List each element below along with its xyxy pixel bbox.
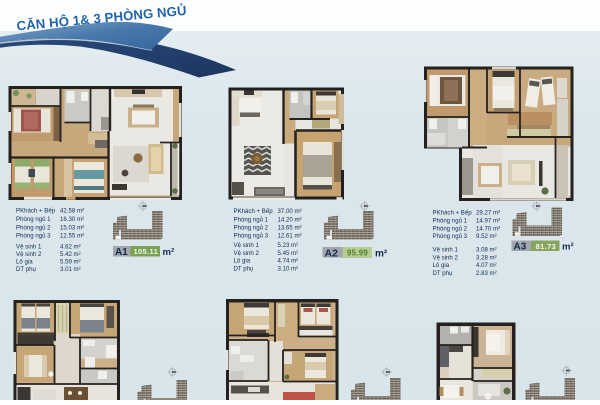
svg-text:14.20 m²: 14.20 m²: [278, 217, 302, 224]
svg-text:5.45 m²: 5.45 m²: [278, 250, 299, 257]
svg-text:PKhách + Bếp: PKhách + Bếp: [234, 208, 274, 215]
svg-text:14.70 m²: 14.70 m²: [476, 226, 500, 233]
svg-text:29.27 m²: 29.27 m²: [476, 210, 500, 217]
svg-text:42.58 m²: 42.58 m²: [60, 208, 84, 215]
svg-text:105.11: 105.11: [134, 247, 159, 256]
svg-text:15.03 m²: 15.03 m²: [60, 225, 84, 232]
svg-text:A2: A2: [325, 247, 339, 259]
svg-text:Phòng ngủ 3: Phòng ngủ 3: [16, 233, 51, 240]
svg-text:3.08 m²: 3.08 m²: [476, 247, 497, 254]
svg-text:A3: A3: [514, 242, 527, 253]
svg-text:Phòng ngủ 3: Phòng ngủ 3: [234, 233, 269, 240]
svg-text:12.55 m²: 12.55 m²: [60, 233, 84, 240]
svg-text:2.83 m²: 2.83 m²: [476, 270, 497, 277]
svg-text:DT phụ: DT phụ: [433, 270, 453, 277]
svg-text:m²: m²: [562, 242, 574, 253]
svg-text:A1: A1: [115, 247, 128, 258]
svg-text:PKhách + Bếp: PKhách + Bếp: [16, 208, 56, 215]
svg-text:3.01 m²: 3.01 m²: [60, 266, 81, 273]
svg-text:Vệ sinh 1: Vệ sinh 1: [234, 242, 260, 249]
svg-text:5.23 m²: 5.23 m²: [278, 242, 299, 249]
svg-text:Vệ sinh 2: Vệ sinh 2: [16, 251, 42, 258]
svg-text:m²: m²: [163, 247, 175, 258]
svg-text:Vệ sinh 1: Vệ sinh 1: [433, 247, 459, 254]
svg-text:Phòng ngủ 1: Phòng ngủ 1: [433, 218, 468, 225]
svg-text:m²: m²: [375, 248, 388, 259]
svg-text:Vệ sinh 2: Vệ sinh 2: [234, 250, 260, 257]
svg-text:4.07 m²: 4.07 m²: [476, 262, 497, 269]
svg-text:13.65 m²: 13.65 m²: [278, 225, 302, 232]
svg-text:Lô gia: Lô gia: [433, 262, 450, 269]
svg-text:95.99: 95.99: [347, 248, 368, 257]
svg-text:Vệ sinh 2: Vệ sinh 2: [433, 255, 459, 262]
svg-text:9.52 m²: 9.52 m²: [476, 233, 497, 240]
svg-text:5.59 m²: 5.59 m²: [60, 259, 81, 266]
svg-text:Phòng ngủ 2: Phòng ngủ 2: [234, 225, 269, 232]
svg-text:DT phụ: DT phụ: [16, 266, 36, 273]
svg-text:16.30 m²: 16.30 m²: [60, 216, 84, 223]
svg-text:3.28 m²: 3.28 m²: [476, 255, 497, 262]
svg-text:Phòng ngủ 2: Phòng ngủ 2: [433, 226, 468, 233]
svg-text:4.62 m²: 4.62 m²: [60, 244, 81, 251]
svg-text:Lô gia: Lô gia: [234, 258, 251, 265]
svg-text:Phòng ngủ 1: Phòng ngủ 1: [234, 217, 269, 224]
svg-text:12.61 m²: 12.61 m²: [278, 233, 302, 240]
svg-text:Phòng ngủ 2: Phòng ngủ 2: [16, 225, 51, 232]
svg-text:DT phụ: DT phụ: [234, 266, 254, 273]
svg-text:PKhách + Bếp: PKhách + Bếp: [433, 210, 473, 217]
svg-text:Phòng ngủ 3: Phòng ngủ 3: [433, 233, 468, 240]
svg-text:Lô gia: Lô gia: [16, 259, 33, 266]
svg-text:Phòng ngủ 1: Phòng ngủ 1: [16, 216, 51, 223]
svg-text:4.74 m²: 4.74 m²: [278, 258, 299, 265]
svg-text:81.73: 81.73: [536, 242, 557, 251]
svg-text:5.42 m²: 5.42 m²: [60, 251, 81, 258]
svg-text:Vệ sinh 1: Vệ sinh 1: [16, 244, 42, 251]
svg-text:3.10 m²: 3.10 m²: [278, 266, 299, 273]
svg-text:14.97 m²: 14.97 m²: [476, 218, 500, 225]
svg-text:37.00 m²: 37.00 m²: [278, 208, 302, 215]
